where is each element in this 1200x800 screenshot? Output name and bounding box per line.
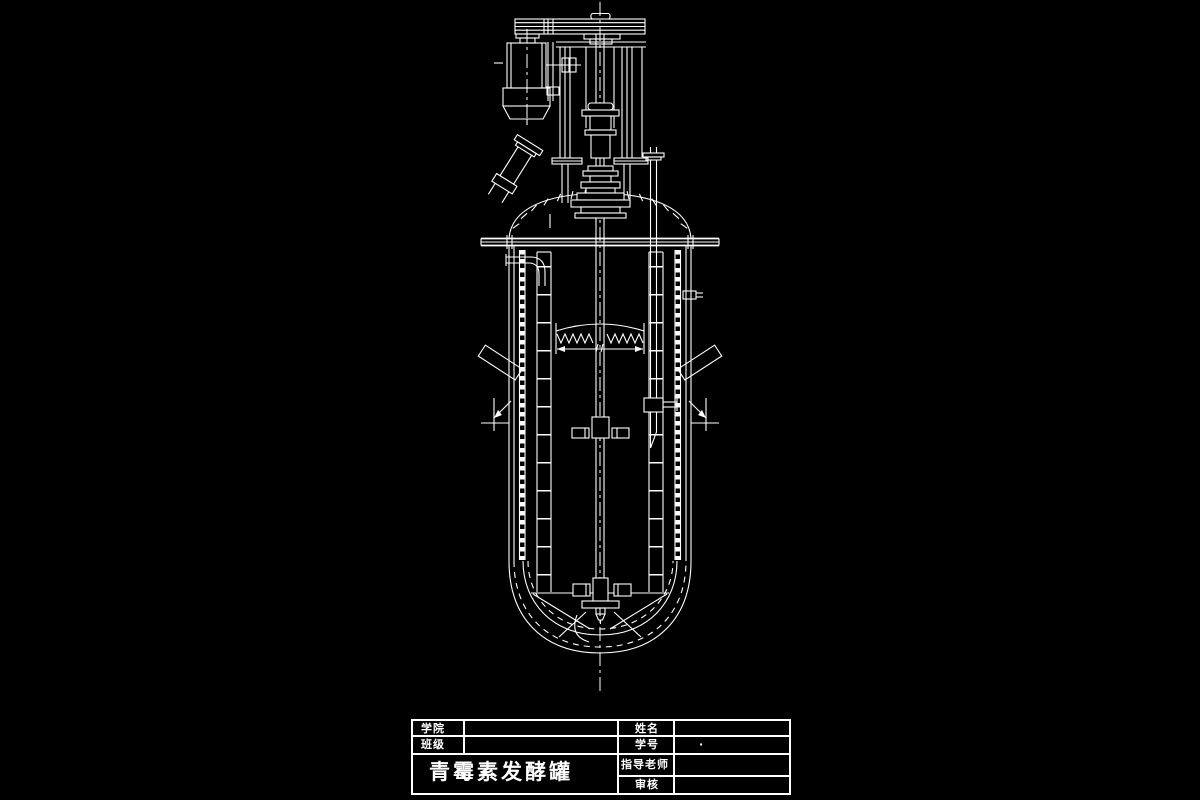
cad-marker-dots: [513, 227, 713, 563]
student-id-label: 学号: [635, 738, 659, 751]
feed-nozzle: [482, 135, 542, 207]
mechanical-seal: [571, 166, 630, 218]
title-block-divider: [617, 721, 619, 793]
sparger-pipe: [643, 147, 677, 448]
title-block-divider: [413, 753, 789, 755]
reviewer-label: 审核: [635, 778, 659, 791]
title-block-divider: [617, 775, 789, 777]
title-block-divider: [673, 721, 675, 793]
upper-impeller: [572, 417, 629, 438]
title-block-divider: [413, 735, 789, 737]
fermentation-tank-drawing: [0, 0, 1200, 800]
name-label: 姓名: [635, 722, 659, 735]
college-label: 学院: [421, 722, 445, 735]
cooling-coil-left: [537, 252, 551, 592]
title-block: 学院 班级 姓名 学号 · 指导老师 审核 青霉素发酵罐: [411, 719, 791, 795]
class-label: 班级: [421, 738, 445, 751]
title-block-divider: [463, 721, 465, 753]
motor-bracket: [546, 42, 581, 101]
side-stub-left: [478, 345, 522, 380]
cad-drawing-viewport: 学院 班级 姓名 学号 · 指导老师 审核 青霉素发酵罐: [0, 0, 1200, 800]
advisor-label: 指导老师: [621, 758, 669, 771]
belt-pulley-drive: [515, 14, 645, 45]
electric-motor: [494, 29, 550, 127]
lower-impeller: [573, 578, 631, 601]
shaft-coupling: [582, 103, 619, 158]
student-id-value: ·: [699, 738, 704, 751]
flow-arrow-right: [689, 398, 719, 431]
drawing-title: 青霉素发酵罐: [429, 759, 573, 785]
side-stub-right: [678, 345, 722, 380]
flow-arrow-left: [481, 398, 511, 431]
